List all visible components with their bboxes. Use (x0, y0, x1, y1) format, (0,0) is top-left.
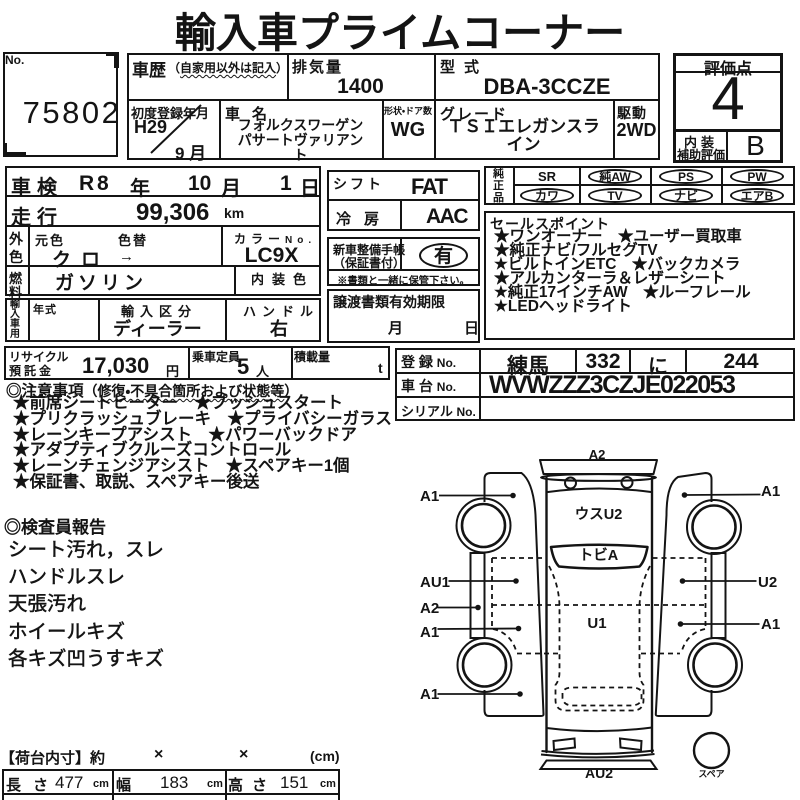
svg-text:U2: U2 (758, 574, 777, 591)
svg-text:A1: A1 (420, 488, 439, 505)
svg-text:スペア: スペア (698, 769, 724, 779)
svg-text:A1: A1 (420, 624, 439, 641)
svg-text:AU2: AU2 (585, 765, 613, 781)
svg-text:ウスU2: ウスU2 (575, 506, 623, 523)
svg-text:トビA: トビA (579, 547, 619, 564)
svg-text:A1: A1 (761, 616, 780, 633)
svg-text:U1: U1 (587, 615, 606, 632)
svg-text:AU1: AU1 (420, 574, 450, 591)
svg-text:A1: A1 (761, 483, 780, 500)
svg-text:A2: A2 (420, 600, 439, 617)
svg-text:A1: A1 (420, 686, 439, 703)
